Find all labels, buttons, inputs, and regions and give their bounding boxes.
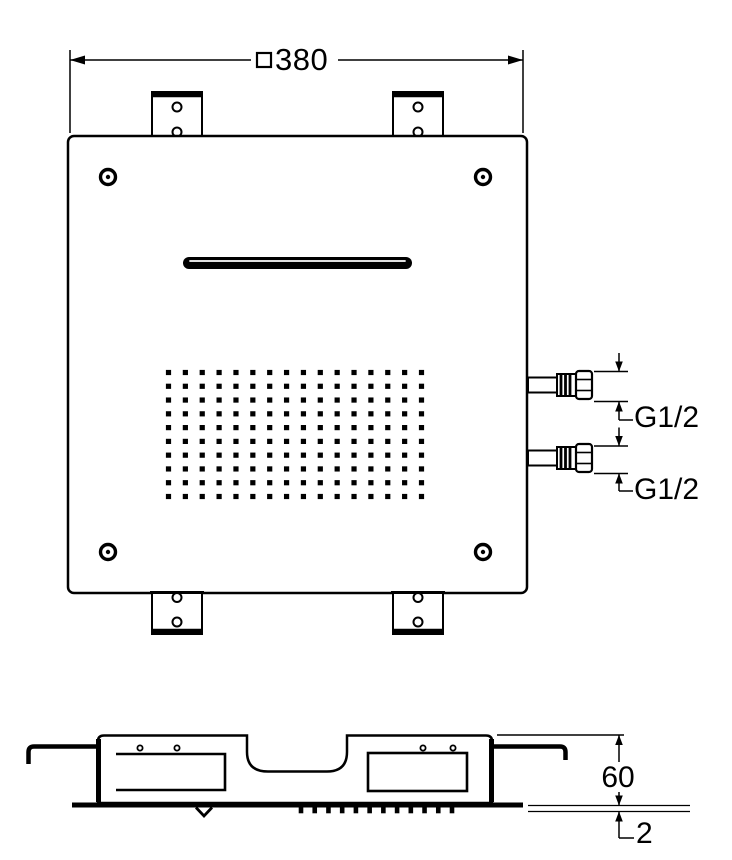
spray-dot (368, 494, 373, 499)
mounting-bracket-bottom-right (391, 592, 445, 634)
height-dimension-value: 60 (601, 761, 634, 794)
spray-dot (385, 411, 390, 416)
spray-dot (284, 494, 289, 499)
spray-dot (217, 411, 222, 416)
spray-dot (200, 411, 205, 416)
spray-dot (200, 370, 205, 375)
mounting-bracket-bottom-left (150, 592, 204, 634)
nozzle-nub (367, 808, 372, 814)
spray-dot (301, 439, 306, 444)
screw (476, 545, 491, 560)
waterfall-lip-chevron (196, 808, 212, 817)
spray-dot (419, 453, 424, 458)
spray-dot (217, 494, 222, 499)
spray-dot (335, 384, 340, 389)
connection-thread-label: G1/2 (634, 473, 699, 506)
spray-dot (166, 439, 171, 444)
spray-dot (419, 466, 424, 471)
spray-dot (318, 439, 323, 444)
spray-dot (183, 466, 188, 471)
spray-dot (402, 480, 407, 485)
spray-dot (183, 494, 188, 499)
spray-dot (402, 466, 407, 471)
spray-dot (267, 453, 272, 458)
spray-dot (233, 397, 238, 402)
connection-thread-label: G1/2 (634, 401, 699, 434)
width-dimension-value: 380 (275, 42, 328, 77)
spray-dot (284, 397, 289, 402)
spray-dot (267, 384, 272, 389)
spray-dot (250, 439, 255, 444)
nozzle-nub (340, 808, 345, 814)
spray-dot (368, 370, 373, 375)
spray-dot (385, 453, 390, 458)
spray-dot (233, 411, 238, 416)
spray-dot (284, 411, 289, 416)
plate-thickness-value: 2 (636, 817, 653, 850)
inlet-fitting-bottom (528, 444, 592, 472)
spray-dot (183, 439, 188, 444)
nozzle-nub (395, 808, 400, 814)
mounting-bracket-top-right (392, 92, 444, 137)
spray-dot (419, 384, 424, 389)
spray-dot (200, 494, 205, 499)
spray-dot (267, 494, 272, 499)
top-view: 380 (68, 42, 699, 634)
spray-dot (217, 397, 222, 402)
spray-dot (284, 370, 289, 375)
spray-dot (318, 370, 323, 375)
spray-dot (419, 425, 424, 430)
spray-dot (250, 384, 255, 389)
shower-panel-drawing: 380 (0, 0, 732, 855)
spray-dot (250, 466, 255, 471)
spray-dot (368, 411, 373, 416)
screw (476, 170, 491, 185)
spray-dot (183, 397, 188, 402)
inlet-fitting-top (528, 371, 592, 399)
waterfall-slot (183, 257, 412, 269)
body-hole (450, 745, 455, 750)
spray-dot (301, 494, 306, 499)
spray-dot (233, 370, 238, 375)
spray-dot (419, 494, 424, 499)
spray-dot (402, 384, 407, 389)
bracket-hole (173, 593, 182, 602)
spray-dot (217, 466, 222, 471)
spray-dot (419, 397, 424, 402)
spray-dot (233, 494, 238, 499)
width-dimension: 380 (70, 42, 523, 133)
spray-dot (351, 494, 356, 499)
spray-dot (267, 480, 272, 485)
body-hole (137, 745, 142, 750)
spray-dot (166, 466, 171, 471)
spray-dot (335, 370, 340, 375)
spray-dot (402, 494, 407, 499)
spray-dot (385, 480, 390, 485)
spray-dot (183, 384, 188, 389)
spray-dot (318, 453, 323, 458)
spray-dot (419, 411, 424, 416)
nozzle-nub (436, 808, 441, 814)
spray-dot (402, 425, 407, 430)
nozzle-nub (422, 808, 427, 814)
spray-dot (183, 480, 188, 485)
spray-dot (166, 370, 171, 375)
spray-dot (267, 425, 272, 430)
nozzle-nub (354, 808, 359, 814)
spray-dot (250, 411, 255, 416)
nozzle-nub (450, 808, 455, 814)
nozzle-nub (299, 808, 304, 814)
spray-dot (301, 411, 306, 416)
spray-dot (318, 384, 323, 389)
spray-dot (351, 370, 356, 375)
spray-dot (166, 494, 171, 499)
spray-dot (385, 425, 390, 430)
spray-dot (335, 466, 340, 471)
spray-dot (250, 397, 255, 402)
mounting-hook-left (29, 747, 97, 765)
spray-dot (284, 425, 289, 430)
spray-dot (318, 466, 323, 471)
spray-dot (351, 384, 356, 389)
spray-dot (351, 397, 356, 402)
spray-dot (402, 439, 407, 444)
mounting-bracket-top-left (151, 92, 203, 137)
fitting-pipe (528, 378, 557, 393)
screw-center (481, 550, 485, 554)
spray-dot (351, 453, 356, 458)
spray-dot (267, 370, 272, 375)
nozzle-nub (409, 808, 414, 814)
spray-dot (250, 453, 255, 458)
spray-dot (284, 439, 289, 444)
spray-dot (267, 397, 272, 402)
spray-dot (385, 494, 390, 499)
spray-dot (301, 480, 306, 485)
spray-dot (419, 370, 424, 375)
nozzle-nub (381, 808, 386, 814)
spray-dot (368, 397, 373, 402)
spray-dot (402, 397, 407, 402)
bracket-hole (173, 618, 182, 627)
spray-dot (166, 411, 171, 416)
spray-dot (385, 439, 390, 444)
spray-dot (335, 411, 340, 416)
spray-dot (351, 480, 356, 485)
bracket-hole (414, 103, 423, 112)
nozzle-nub (326, 808, 331, 814)
spray-dot (217, 425, 222, 430)
screw-center (481, 175, 485, 179)
spray-dot (335, 453, 340, 458)
arrowhead-down-icon (615, 796, 623, 806)
body-hole (420, 745, 425, 750)
bracket-hole (414, 618, 423, 627)
spray-dot (200, 384, 205, 389)
spray-dot (318, 494, 323, 499)
spray-dot (267, 439, 272, 444)
spray-dot (166, 453, 171, 458)
screw-center (106, 550, 110, 554)
spray-dot (200, 480, 205, 485)
spray-dot (301, 370, 306, 375)
spray-dot (217, 480, 222, 485)
panel-face (68, 136, 527, 593)
spray-dot (200, 466, 205, 471)
arrowhead-down-icon (615, 362, 623, 372)
spray-dot (335, 397, 340, 402)
spray-dot (267, 411, 272, 416)
spray-dot (335, 494, 340, 499)
spray-dot (233, 453, 238, 458)
spray-dot (301, 397, 306, 402)
spray-dot (250, 494, 255, 499)
body-hole (174, 745, 179, 750)
spray-dot (183, 411, 188, 416)
spray-dot (351, 439, 356, 444)
spray-dot (368, 384, 373, 389)
spray-dot (402, 453, 407, 458)
spray-dot (419, 480, 424, 485)
spray-dot (284, 480, 289, 485)
spray-dot (250, 425, 255, 430)
arrowhead-down-icon (615, 436, 623, 446)
bracket-hole (173, 103, 182, 112)
spray-dot (217, 370, 222, 375)
spray-dot (200, 425, 205, 430)
spray-dot (200, 439, 205, 444)
spray-dot (335, 480, 340, 485)
screw-center (106, 175, 110, 179)
spray-dot (166, 384, 171, 389)
spray-dot (351, 466, 356, 471)
spray-dot (233, 384, 238, 389)
spray-dot (385, 397, 390, 402)
screw (101, 545, 116, 560)
nozzle-row (299, 808, 455, 814)
spray-dot (183, 453, 188, 458)
spray-dot (368, 453, 373, 458)
spray-dot (318, 397, 323, 402)
spray-dot (233, 466, 238, 471)
spray-dot (368, 480, 373, 485)
technical-drawing-page: 380 (0, 0, 732, 855)
spray-dot (301, 453, 306, 458)
spray-dot (419, 439, 424, 444)
spray-dot (166, 480, 171, 485)
spray-dot (200, 453, 205, 458)
spray-dot (217, 384, 222, 389)
spray-dot (335, 439, 340, 444)
fitting-nut (576, 371, 592, 399)
spray-dot (166, 425, 171, 430)
spray-dot (284, 453, 289, 458)
spray-dot (284, 466, 289, 471)
spray-dot (301, 425, 306, 430)
spray-dot (368, 466, 373, 471)
spray-dot (318, 411, 323, 416)
spray-dot (351, 411, 356, 416)
spray-dot (217, 453, 222, 458)
spray-dot (301, 466, 306, 471)
spray-dot (402, 411, 407, 416)
arrowhead-left-icon (70, 56, 85, 65)
slot-body (183, 257, 412, 269)
spray-dot (233, 439, 238, 444)
spray-dot (385, 384, 390, 389)
spray-dot (217, 439, 222, 444)
spray-dot (250, 370, 255, 375)
spray-dot (200, 397, 205, 402)
square-symbol-icon (257, 53, 271, 67)
arrowhead-right-icon (508, 56, 523, 65)
spray-dot (183, 370, 188, 375)
spray-dot (335, 425, 340, 430)
housing-body (98, 736, 492, 804)
screw (101, 170, 116, 185)
spray-dot (318, 425, 323, 430)
fitting-pipe (528, 451, 557, 466)
spray-dot (284, 384, 289, 389)
side-view: 60 2 (29, 735, 691, 850)
mounting-hook-right (494, 747, 566, 761)
spray-dot (301, 384, 306, 389)
nozzle-nub (312, 808, 317, 814)
bracket-hole (414, 593, 423, 602)
spray-dot (233, 480, 238, 485)
spray-dot (351, 425, 356, 430)
spray-dot (368, 439, 373, 444)
spray-dot (368, 425, 373, 430)
spray-dot (385, 466, 390, 471)
spray-dot (385, 370, 390, 375)
plate-thickness-dimension: 2 (528, 806, 690, 851)
spray-dot (166, 397, 171, 402)
spray-dot (250, 480, 255, 485)
spray-dot (402, 370, 407, 375)
spray-dot (318, 480, 323, 485)
spray-dot (183, 425, 188, 430)
fitting-nut (576, 444, 592, 472)
spray-dot (233, 425, 238, 430)
connection-dimension-bottom: G1/2 (594, 428, 699, 507)
connection-dimension-top: G1/2 (594, 353, 699, 434)
spray-dot (267, 466, 272, 471)
